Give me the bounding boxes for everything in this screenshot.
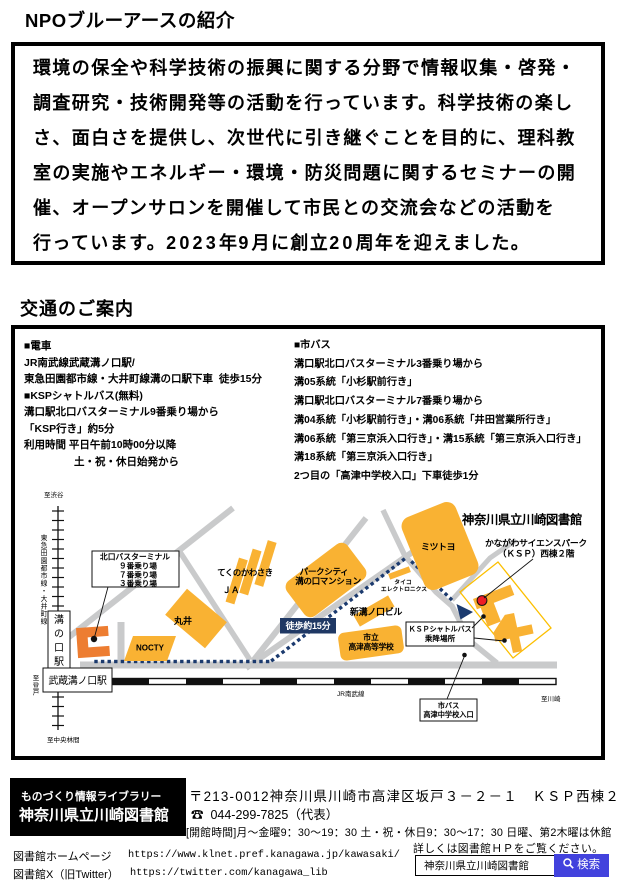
svg-text:JR南武線: JR南武線 bbox=[337, 689, 365, 698]
svg-text:エレクトロニクス: エレクトロニクス bbox=[381, 585, 427, 593]
svg-text:至渋谷: 至渋谷 bbox=[44, 490, 64, 499]
svg-text:ＫＳＰシャトルバス: ＫＳＰシャトルバス bbox=[409, 625, 472, 634]
svg-text:３番乗り場: ３番乗り場 bbox=[119, 578, 157, 588]
svg-text:高津中学校入口: 高津中学校入口 bbox=[423, 710, 473, 719]
svg-text:徒歩約15分: 徒歩約15分 bbox=[285, 620, 331, 631]
svg-text:武蔵溝ノ口駅: 武蔵溝ノ口駅 bbox=[48, 674, 106, 687]
svg-text:東急田園都市線・大井町線: 東急田園都市線・大井町線 bbox=[41, 533, 48, 626]
svg-text:至中央林間: 至中央林間 bbox=[47, 735, 80, 744]
svg-text:パークシティ: パークシティ bbox=[300, 566, 349, 577]
svg-text:至登戸: 至登戸 bbox=[33, 674, 40, 697]
svg-text:高津高等学校: 高津高等学校 bbox=[349, 642, 394, 652]
svg-text:北口バスターミナル: 北口バスターミナル bbox=[100, 552, 170, 562]
svg-text:ミツトヨ: ミツトヨ bbox=[421, 542, 455, 552]
svg-text:NOCTY: NOCTY bbox=[136, 644, 165, 653]
svg-text:かながわサイエンスパーク: かながわサイエンスパーク bbox=[485, 537, 587, 548]
svg-text:溝の口マンション: 溝の口マンション bbox=[295, 575, 361, 586]
svg-text:てくのかわさき: てくのかわさき bbox=[217, 568, 273, 578]
svg-text:至川崎: 至川崎 bbox=[541, 694, 561, 703]
svg-text:新溝ノ口ビル: 新溝ノ口ビル bbox=[350, 606, 403, 617]
svg-text:丸井: 丸井 bbox=[173, 615, 192, 626]
svg-text:９番乗り場: ９番乗り場 bbox=[119, 561, 157, 571]
svg-text:７番乗り場: ７番乗り場 bbox=[119, 570, 157, 580]
svg-text:ＪＡ: ＪＡ bbox=[222, 585, 239, 595]
svg-text:市立: 市立 bbox=[363, 632, 379, 642]
svg-text:タイコ: タイコ bbox=[394, 578, 412, 586]
svg-text:乗降場所: 乗降場所 bbox=[425, 633, 456, 643]
svg-text:（ＫＳＰ）西棟２階: （ＫＳＰ）西棟２階 bbox=[498, 548, 575, 559]
svg-text:市バス: 市バス bbox=[438, 701, 460, 710]
svg-text:神奈川県立川崎図書館: 神奈川県立川崎図書館 bbox=[462, 512, 582, 527]
